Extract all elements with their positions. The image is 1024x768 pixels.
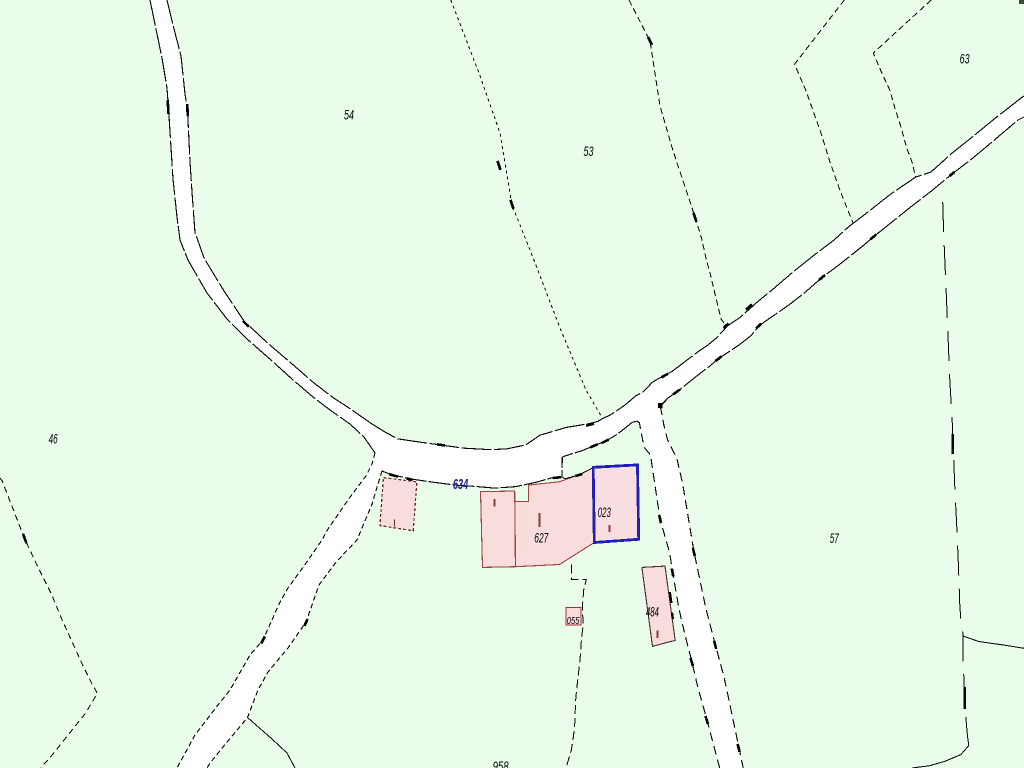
- svg-text:63: 63: [960, 52, 970, 67]
- svg-text:627: 627: [534, 531, 548, 546]
- svg-text:055: 055: [567, 615, 580, 627]
- svg-text:484: 484: [646, 604, 659, 619]
- svg-text:54: 54: [344, 108, 354, 123]
- svg-text:023: 023: [598, 505, 611, 520]
- svg-text:46: 46: [49, 431, 58, 446]
- svg-text:634: 634: [453, 477, 468, 493]
- svg-text:53: 53: [584, 144, 594, 159]
- svg-text:958: 958: [493, 759, 509, 768]
- svg-text:57: 57: [830, 531, 839, 546]
